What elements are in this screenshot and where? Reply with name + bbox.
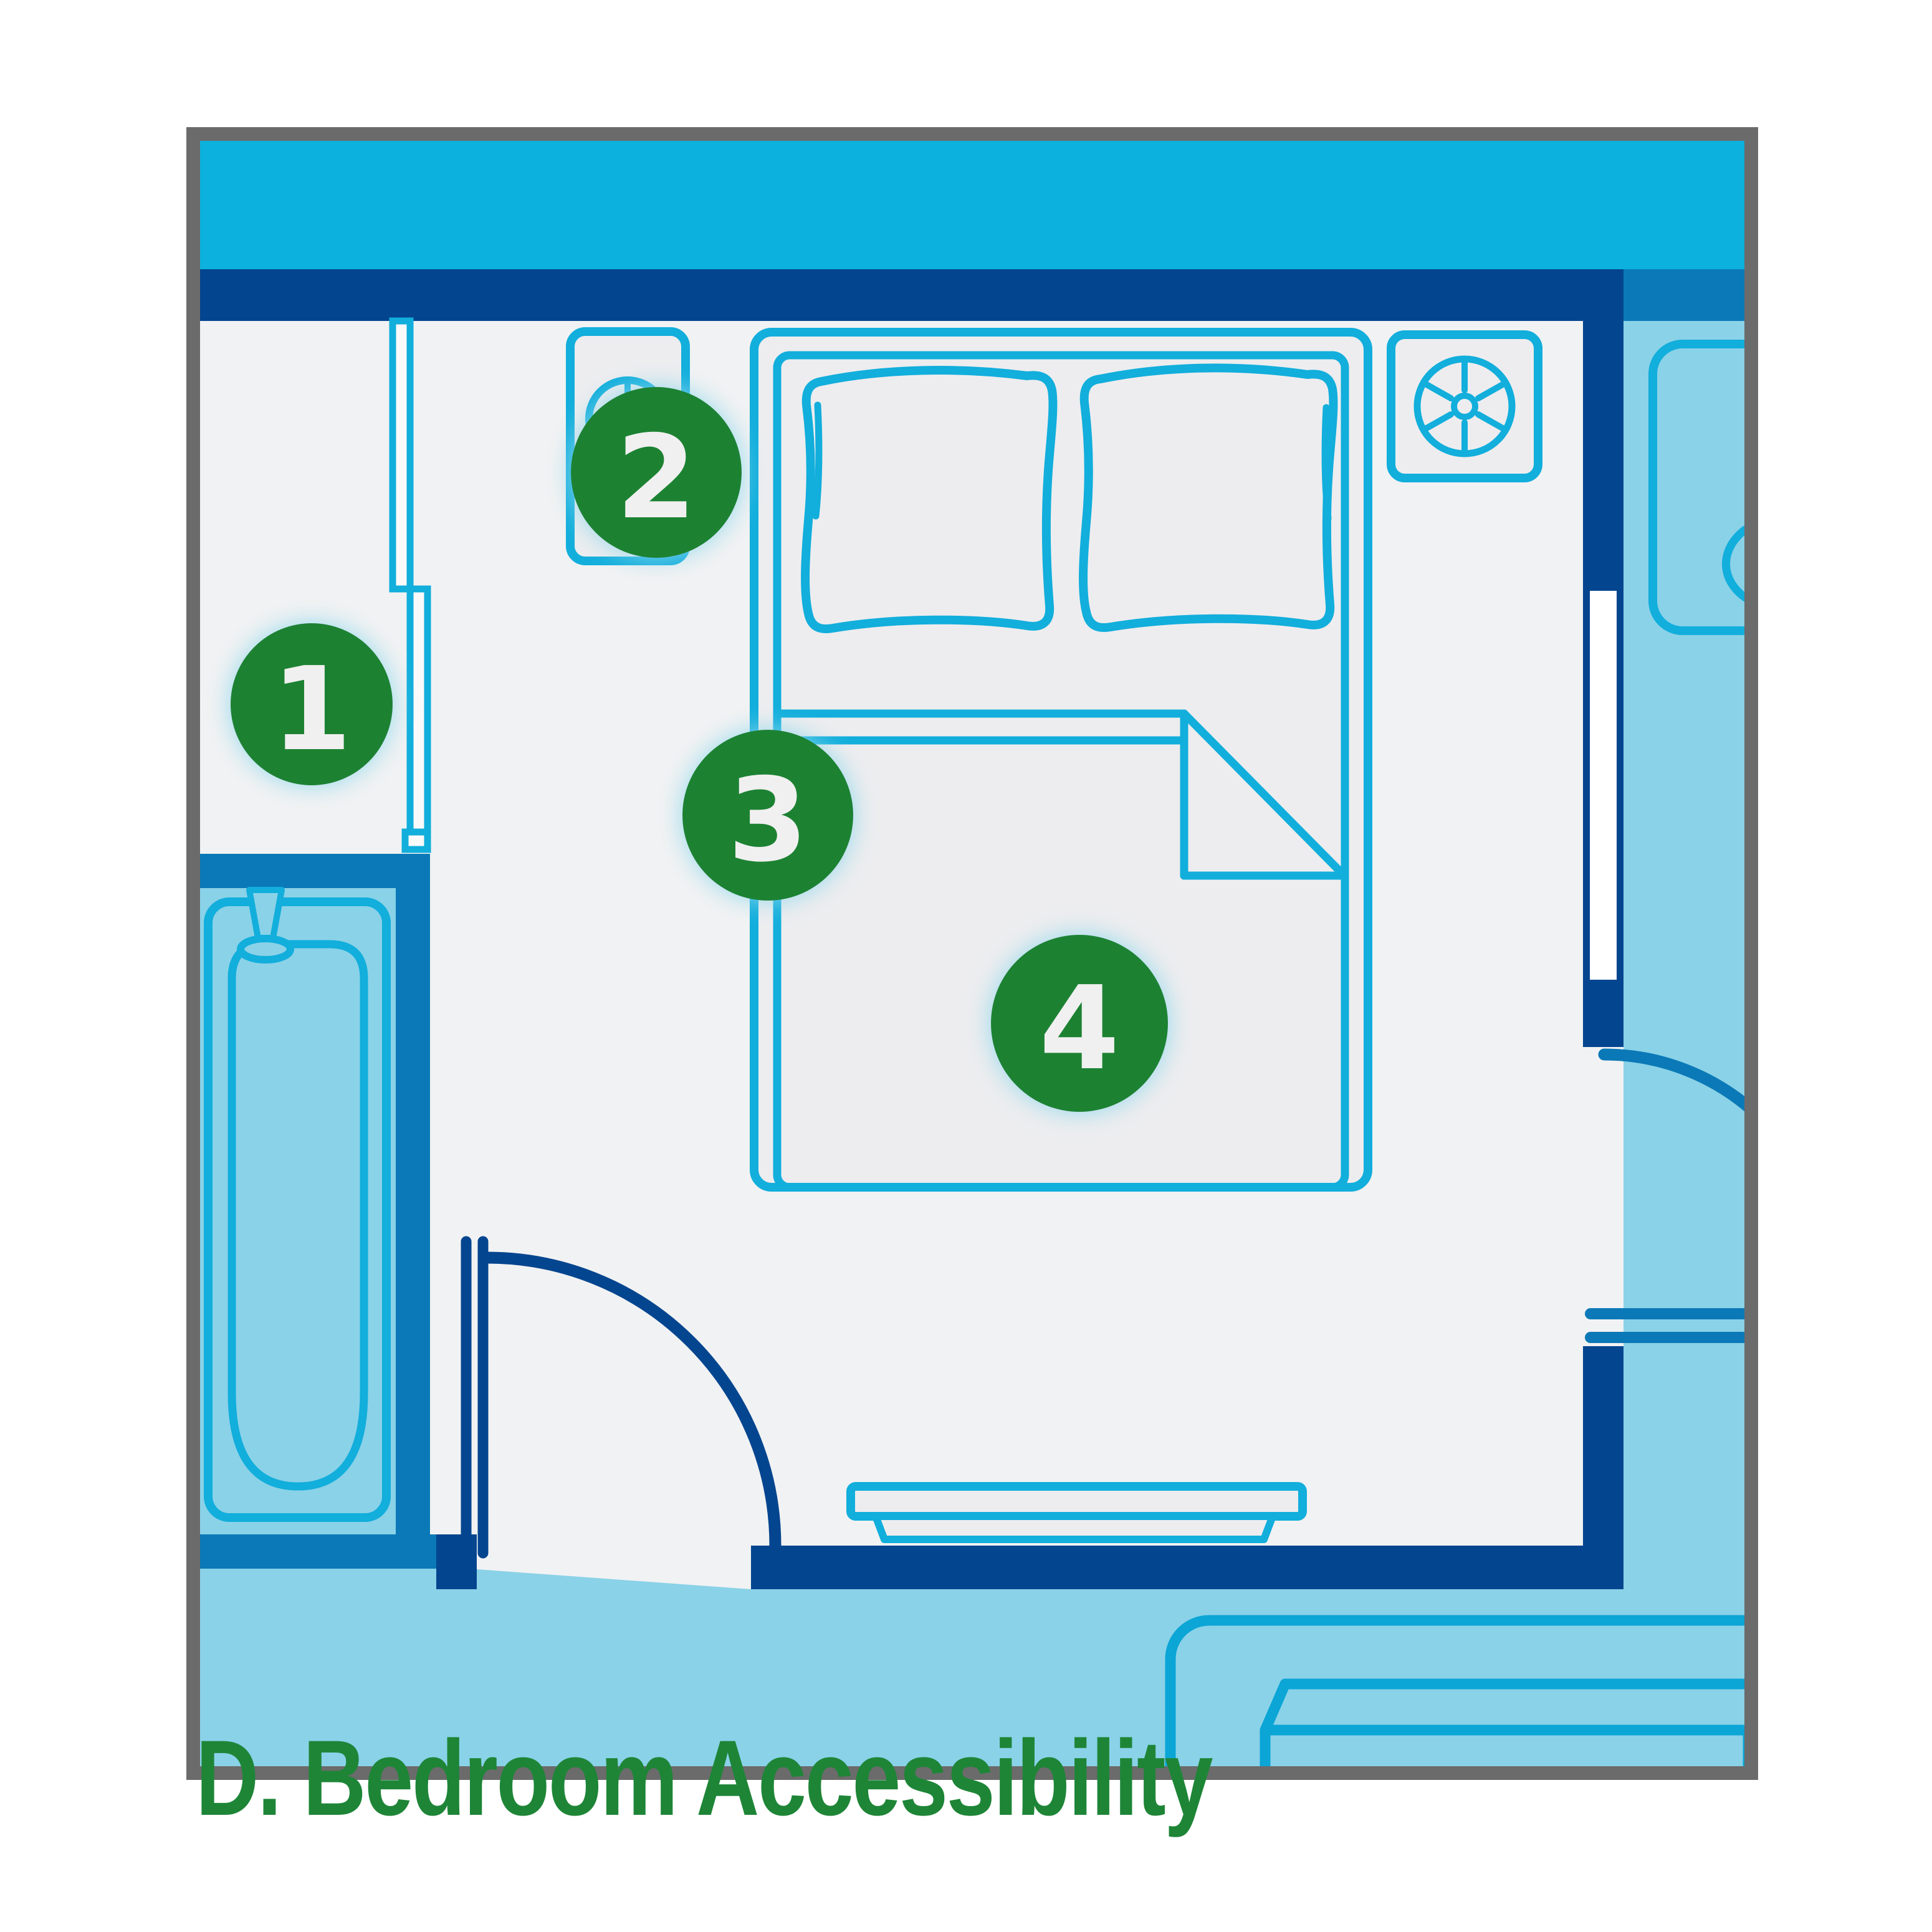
marker-1-number: 1 — [272, 642, 352, 777]
corridor-top-wall — [1624, 269, 1744, 321]
closet-door-track-cap — [405, 832, 428, 849]
ceiling-fan-hub — [1454, 396, 1475, 417]
ceiling-band — [200, 141, 1744, 269]
marker-4: 4 — [991, 935, 1168, 1112]
top-wall — [200, 269, 1624, 321]
right-wall-lower — [1583, 1346, 1624, 1589]
corridor-cabinet — [1653, 344, 1827, 631]
caption: D. Bedroom Accessibility — [196, 1718, 1213, 1838]
bathtub — [208, 890, 386, 1518]
pillow-left — [805, 370, 1053, 629]
bathroom-top-wall — [200, 854, 430, 888]
closet-door-panel-outer — [393, 321, 410, 589]
ceiling-fan — [1391, 335, 1538, 478]
bedroom-accessibility-floorplan: 1 2 3 4 D. Bedroom Accessibility — [0, 0, 1932, 1932]
wall-shelf-top — [851, 1486, 1303, 1516]
marker-3-number: 3 — [728, 753, 808, 887]
marker-4-number: 4 — [1040, 961, 1120, 1096]
bathroom-right-wall — [396, 854, 430, 1558]
bathtub-faucet-icon — [249, 890, 282, 938]
marker-1: 1 — [231, 623, 393, 785]
right-wall-mid — [1583, 988, 1624, 1047]
right-wall-upper — [1583, 269, 1624, 583]
bathroom-bottom-wall — [200, 1534, 436, 1569]
wall-shelf-base — [876, 1516, 1273, 1539]
marker-2: 2 — [571, 387, 742, 558]
window — [1590, 591, 1617, 980]
marker-3: 3 — [682, 730, 853, 901]
pillow-right — [1083, 368, 1333, 628]
wall-shelf — [851, 1486, 1303, 1539]
closet-door-panel-inner — [410, 589, 428, 849]
bathtub-faucet-spout-icon — [241, 939, 290, 960]
marker-2-number: 2 — [616, 410, 697, 545]
figure: 1 2 3 4 D. Bedroom Accessibility — [0, 0, 1932, 1932]
bottom-wall — [751, 1546, 1624, 1589]
pillow-left-crease — [816, 405, 819, 516]
pillow-right-crease — [1325, 408, 1328, 519]
